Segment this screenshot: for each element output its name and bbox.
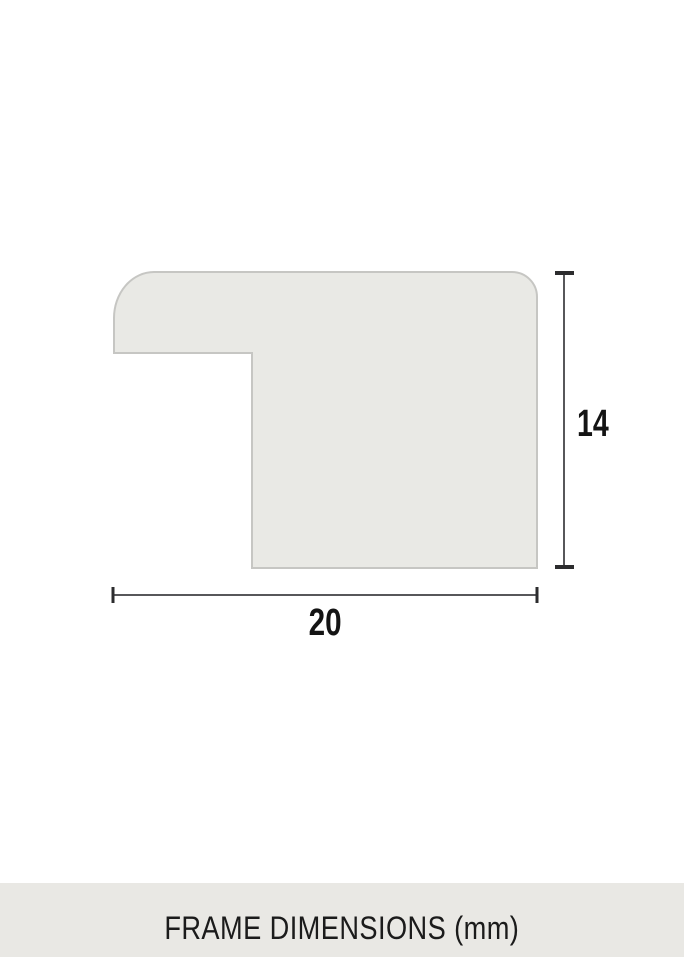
footer-title: FRAME DIMENSIONS (mm)	[165, 912, 520, 944]
width-dimension-label: 20	[309, 604, 342, 642]
frame-dimension-diagram: 14 20 FRAME DIMENSIONS (mm)	[0, 0, 684, 957]
footer-bar: FRAME DIMENSIONS (mm)	[0, 883, 684, 957]
width-dimension-label-box: 20	[113, 604, 537, 642]
profile-diagram-svg	[0, 0, 684, 957]
frame-profile-shape	[114, 272, 537, 568]
height-dimension-label: 14	[577, 405, 609, 443]
